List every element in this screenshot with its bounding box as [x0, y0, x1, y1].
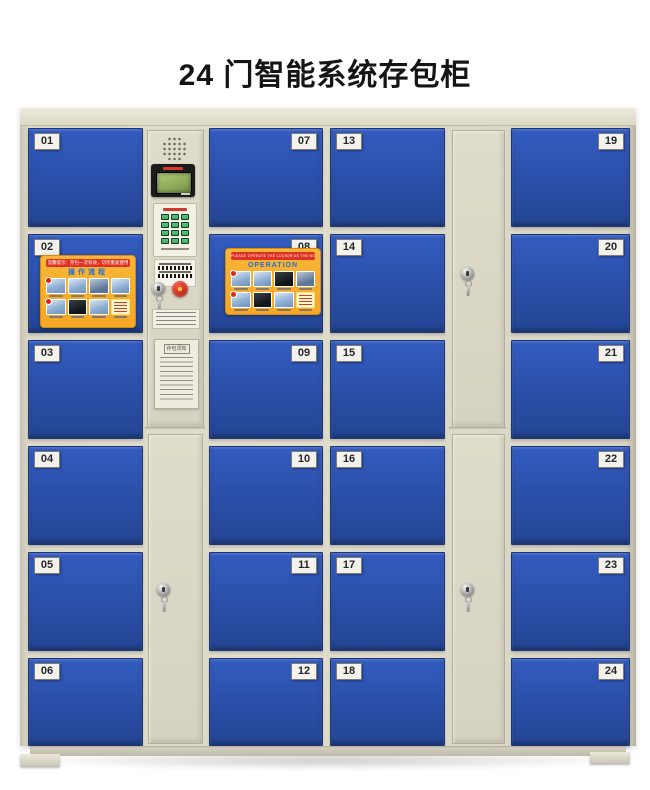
keypad-panel — [153, 203, 197, 257]
locker-door-20[interactable]: 20 — [511, 234, 630, 333]
step-thumbnail — [46, 299, 66, 318]
step-thumbnail — [253, 292, 273, 311]
locker-door-05[interactable]: 05 — [28, 552, 143, 651]
lcd-label — [163, 167, 183, 170]
step-note — [296, 292, 316, 311]
keypad-key[interactable] — [161, 238, 169, 244]
panel-seam — [145, 427, 205, 430]
operation-guide-sticker: PLEASE OPERATE THE LOCKER AS THE NOTICE … — [225, 248, 321, 315]
locker-door-10[interactable]: 10 — [209, 446, 323, 545]
door-number-plate: 14 — [336, 239, 362, 256]
door-number-plate: 09 — [291, 345, 317, 362]
step-thumbnail — [274, 271, 294, 290]
locker-door-21[interactable]: 21 — [511, 340, 630, 439]
panel-seam — [449, 427, 506, 430]
step-thumbnail — [89, 278, 109, 297]
locker-door-01[interactable]: 01 — [28, 128, 143, 227]
notice-sticker: 存包须知 — [154, 339, 199, 409]
keypad-key[interactable] — [181, 214, 189, 220]
door-number-plate: 07 — [291, 133, 317, 150]
emergency-button[interactable] — [172, 281, 188, 297]
service-column — [449, 128, 506, 744]
keyhole-icon — [461, 583, 474, 596]
cabinet-base — [30, 746, 626, 756]
door-number-plate: 01 — [34, 133, 60, 150]
step-badge-icon — [45, 298, 52, 305]
cabinet-top-cap — [20, 108, 636, 126]
cabinet-foot — [590, 752, 630, 763]
operation-guide-sticker: 温馨提示：存包一次有效，切勿重复使用 操作流程 — [40, 255, 136, 328]
keypad-label — [163, 208, 187, 211]
service-info-label — [152, 309, 200, 329]
step-note — [111, 299, 131, 318]
key-icon — [465, 280, 472, 296]
page-title: 24 门智能系统存包柜 — [0, 50, 650, 94]
locker-door-11[interactable]: 11 — [209, 552, 323, 651]
sticker-title: 操作流程 — [44, 268, 132, 277]
key-icon — [161, 596, 168, 612]
service-door-lower[interactable] — [452, 434, 505, 744]
door-number-plate: 02 — [34, 239, 60, 256]
locker-door-12[interactable]: 12 — [209, 658, 323, 746]
door-number-plate: 19 — [598, 133, 624, 150]
keypad-key[interactable] — [161, 222, 169, 228]
keypad-key[interactable] — [171, 238, 179, 244]
step-thumbnail — [274, 292, 294, 311]
door-number-plate: 15 — [336, 345, 362, 362]
locker-door-15[interactable]: 15 — [330, 340, 445, 439]
speaker-grille-icon — [161, 137, 188, 161]
door-number-plate: 03 — [34, 345, 60, 362]
door-number-plate: 21 — [598, 345, 624, 362]
door-number-plate: 24 — [598, 663, 624, 680]
keypad-key[interactable] — [181, 222, 189, 228]
keypad-key[interactable] — [171, 222, 179, 228]
door-number-plate: 17 — [336, 557, 362, 574]
door-number-plate: 10 — [291, 451, 317, 468]
notice-title: 存包须知 — [164, 344, 190, 354]
locker-door-22[interactable]: 22 — [511, 446, 630, 545]
key-icon — [465, 596, 472, 612]
sticker-banner: 温馨提示：存包一次有效，切勿重复使用 — [46, 259, 130, 267]
step-badge-icon — [230, 291, 237, 298]
locker-door-06[interactable]: 06 — [28, 658, 143, 746]
door-number-plate: 22 — [598, 451, 624, 468]
locker-door-13[interactable]: 13 — [330, 128, 445, 227]
door-number-plate: 13 — [336, 133, 362, 150]
lcd-brand-label — [181, 193, 190, 195]
door-number-plate: 18 — [336, 663, 362, 680]
locker-door-18[interactable]: 18 — [330, 658, 445, 746]
step-thumbnail — [46, 278, 66, 297]
locker-door-23[interactable]: 23 — [511, 552, 630, 651]
sticker-banner: PLEASE OPERATE THE LOCKER AS THE NOTICE … — [231, 252, 315, 260]
locker-door-24[interactable]: 24 — [511, 658, 630, 746]
locker-door-03[interactable]: 03 — [28, 340, 143, 439]
door-number-plate: 16 — [336, 451, 362, 468]
step-badge-icon — [45, 277, 52, 284]
sticker-title: OPERATION — [229, 261, 317, 270]
locker-door-19[interactable]: 19 — [511, 128, 630, 227]
step-thumbnail — [111, 278, 131, 297]
service-door-lock[interactable] — [461, 583, 475, 612]
step-badge-icon — [230, 270, 237, 277]
step-thumbnail — [231, 292, 251, 311]
door-number-plate: 12 — [291, 663, 317, 680]
sticker-step-grid — [44, 277, 132, 318]
step-thumbnail — [296, 271, 316, 290]
cabinet-foot — [20, 754, 60, 766]
door-number-plate: 05 — [34, 557, 60, 574]
panel-key-lock[interactable] — [152, 282, 166, 311]
product-photo: 24 门智能系统存包柜 01 02 温馨提示：存包一次有效，切勿重复使用 操作流… — [0, 0, 650, 790]
service-door-upper[interactable] — [452, 130, 505, 428]
locker-door-08[interactable]: 08 PLEASE OPERATE THE LOCKER AS THE NOTI… — [209, 234, 323, 333]
maintenance-door-lock[interactable] — [157, 583, 171, 612]
keypad-key[interactable] — [161, 230, 169, 236]
locker-door-14[interactable]: 14 — [330, 234, 445, 333]
control-panel-column: 存包须知 — [145, 128, 205, 744]
floor-shadow — [24, 754, 628, 770]
door-number-plate: 04 — [34, 451, 60, 468]
lcd-display — [151, 164, 195, 197]
keypad-key[interactable] — [171, 230, 179, 236]
door-number-plate: 23 — [598, 557, 624, 574]
sticker-step-grid — [229, 270, 317, 311]
keypad[interactable] — [154, 214, 196, 244]
locker-door-09[interactable]: 09 — [209, 340, 323, 439]
lcd-screen — [156, 172, 192, 194]
door-number-plate: 06 — [34, 663, 60, 680]
locker-door-07[interactable]: 07 — [209, 128, 323, 227]
notice-text-lines — [160, 357, 193, 403]
keypad-key[interactable] — [181, 230, 189, 236]
locker-door-02[interactable]: 02 温馨提示：存包一次有效，切勿重复使用 操作流程 — [28, 234, 143, 333]
service-door-lock[interactable] — [461, 267, 475, 296]
keyhole-icon — [157, 583, 170, 596]
keypad-key[interactable] — [161, 214, 169, 220]
step-thumbnail — [68, 278, 88, 297]
door-number-plate: 20 — [598, 239, 624, 256]
maintenance-door-lower-left[interactable] — [148, 434, 203, 744]
keyhole-icon — [461, 267, 474, 280]
door-number-plate: 11 — [291, 557, 317, 574]
locker-door-17[interactable]: 17 — [330, 552, 445, 651]
step-thumbnail — [89, 299, 109, 318]
keypad-key[interactable] — [171, 214, 179, 220]
step-thumbnail — [231, 271, 251, 290]
step-thumbnail — [253, 271, 273, 290]
locker-door-16[interactable]: 16 — [330, 446, 445, 545]
locker-door-04[interactable]: 04 — [28, 446, 143, 545]
keyhole-icon — [152, 282, 165, 295]
keypad-key[interactable] — [181, 238, 189, 244]
step-thumbnail — [68, 299, 88, 318]
keypad-caption — [161, 248, 189, 250]
